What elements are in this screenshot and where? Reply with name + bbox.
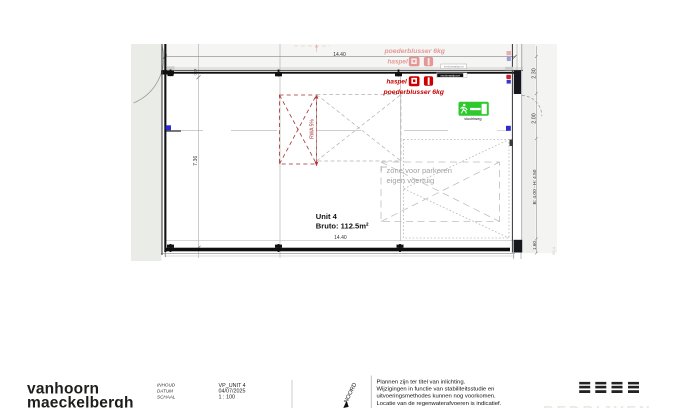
svg-text:RWA 5%: RWA 5% (309, 119, 315, 139)
svg-text:NOORD: NOORD (344, 382, 359, 404)
svg-text:Unit 4: Unit 4 (316, 212, 338, 221)
svg-text:Wijzigingen in functie van sta: Wijzigingen in functie van stabiliteitss… (377, 387, 495, 393)
svg-text:vluchtweg: vluchtweg (464, 116, 481, 121)
svg-text:Bruto: 112.5m²: Bruto: 112.5m² (316, 222, 369, 231)
svg-text:zone voor parkeren: zone voor parkeren (387, 166, 452, 175)
svg-text:haspel: haspel (388, 58, 408, 65)
svg-text:1 : 100: 1 : 100 (219, 395, 236, 401)
svg-text:2.00: 2.00 (531, 113, 537, 124)
svg-text:1.60: 1.60 (532, 241, 537, 250)
svg-text:poederblusser 6kg: poederblusser 6kg (384, 48, 446, 55)
svg-text:2.30: 2.30 (531, 68, 537, 79)
svg-text:poederblusser 6kg: poederblusser 6kg (383, 89, 445, 96)
svg-text:Locatie van de regenwaterafvoe: Locatie van de regenwaterafvoeren is ind… (377, 401, 502, 407)
svg-text:haspel: haspel (387, 79, 407, 86)
svg-text:Plannen zijn ter titel van inl: Plannen zijn ter titel van inlichting. (377, 380, 466, 386)
svg-text:uitvoeringsmethodes kunnen nog: uitvoeringsmethodes kunnen nog voorkomen… (377, 394, 497, 400)
svg-text:14.40: 14.40 (334, 235, 347, 241)
svg-text:14.40: 14.40 (333, 52, 346, 58)
svg-text:7.36: 7.36 (193, 156, 199, 166)
svg-text:B: 4.00 - H: 4.50: B: 4.00 - H: 4.50 (532, 169, 538, 204)
svg-text:sectionaalpoort: sectionaalpoort (444, 65, 464, 69)
svg-text:DATUM: DATUM (157, 389, 173, 394)
svg-text:SCHAAL: SCHAAL (157, 394, 176, 399)
svg-text:eigen voertuig: eigen voertuig (387, 176, 435, 185)
svg-text:sectionaalpoort: sectionaalpoort (440, 73, 460, 77)
svg-text:BEDRIJVEN: BEDRIJVEN (543, 403, 652, 408)
svg-text:INHOUD: INHOUD (157, 383, 176, 388)
svg-text:62,4: 62,4 (551, 246, 556, 255)
svg-text:maeckelbergh: maeckelbergh (27, 395, 134, 408)
